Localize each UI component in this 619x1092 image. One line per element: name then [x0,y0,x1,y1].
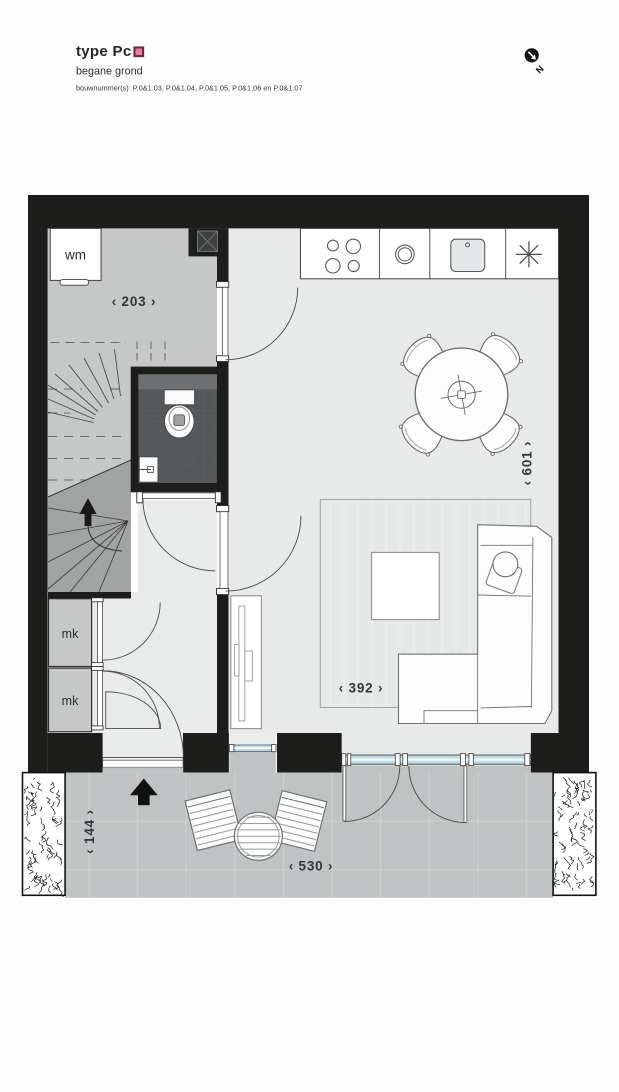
svg-text:‹ 203 ›: ‹ 203 › [112,294,157,309]
svg-text:‹ 530 ›: ‹ 530 › [289,859,334,874]
svg-text:mk: mk [62,627,79,641]
svg-text:‹ 601 ›: ‹ 601 › [520,441,535,486]
svg-text:bouwnummer(s): P.0&1.03, P.0&1: bouwnummer(s): P.0&1.03, P.0&1.04, P.0&1… [76,84,303,93]
svg-text:begane grond: begane grond [76,66,143,78]
svg-text:‹ 392 ›: ‹ 392 › [339,681,384,696]
svg-text:wm: wm [64,248,86,263]
svg-text:mk: mk [62,694,79,708]
svg-text:type Pc: type Pc [76,43,131,60]
svg-text:‹ 144 ›: ‹ 144 › [82,809,97,854]
